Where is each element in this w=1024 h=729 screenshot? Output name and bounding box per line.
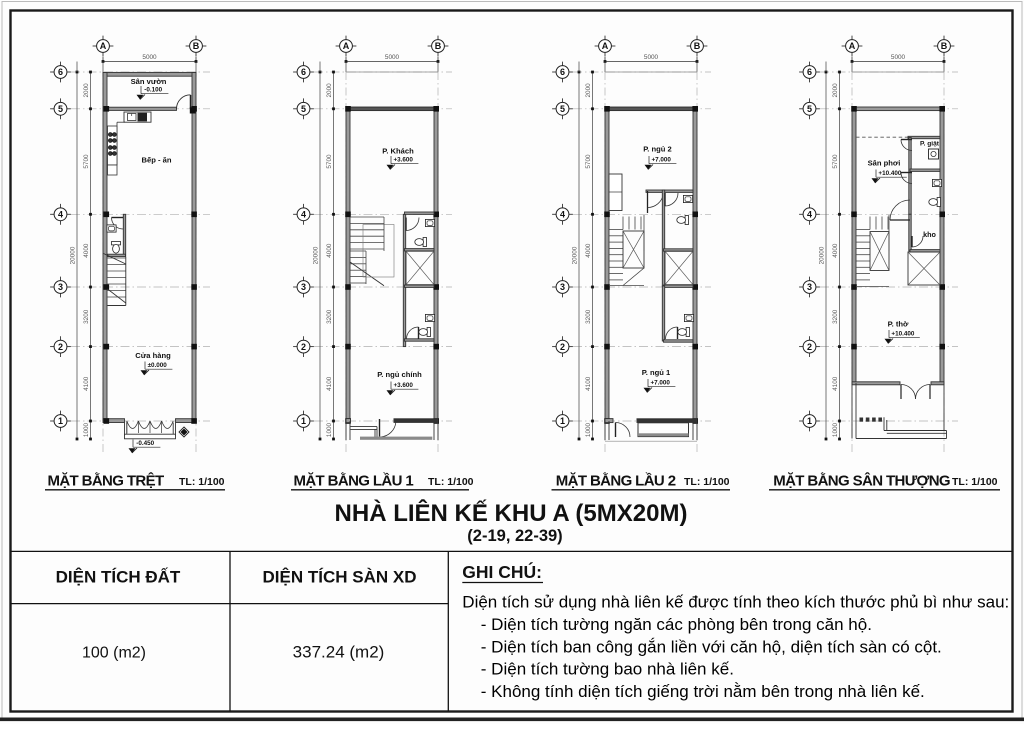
svg-text:2: 2 (807, 342, 812, 352)
svg-text:P. Khách: P. Khách (382, 147, 414, 156)
svg-text:4100: 4100 (585, 376, 592, 391)
svg-text:3: 3 (58, 282, 63, 292)
svg-text:B: B (694, 41, 701, 51)
svg-text:6: 6 (807, 67, 812, 77)
svg-text:A: A (602, 41, 609, 51)
svg-text:1000: 1000 (83, 422, 90, 437)
svg-text:P. ngủ 2: P. ngủ 2 (643, 145, 672, 154)
svg-text:5700: 5700 (326, 154, 333, 169)
svg-text:1: 1 (807, 416, 812, 426)
svg-text:2000: 2000 (83, 83, 90, 98)
svg-text:20000: 20000 (819, 246, 826, 264)
svg-text:Diện tích sử dụng nhà liên kế: Diện tích sử dụng nhà liên kế được tính … (462, 593, 1009, 612)
svg-text:4: 4 (807, 210, 812, 220)
svg-text:MẶT BẰNG LẦU 2: MẶT BẰNG LẦU 2 (556, 472, 676, 490)
svg-text:4000: 4000 (832, 243, 839, 258)
svg-text:4100: 4100 (832, 376, 839, 391)
svg-text:3: 3 (301, 282, 306, 292)
svg-text:P. ngủ 1: P. ngủ 1 (642, 368, 671, 377)
svg-text:Sân vườn: Sân vườn (131, 77, 167, 86)
svg-text:6: 6 (58, 67, 63, 77)
svg-text:Bếp - ăn: Bếp - ăn (142, 156, 172, 165)
svg-text:+10.400: +10.400 (878, 170, 901, 177)
svg-text:+7.000: +7.000 (650, 380, 670, 387)
svg-text:4000: 4000 (585, 243, 592, 258)
svg-text:3: 3 (807, 282, 812, 292)
svg-text:1000: 1000 (832, 422, 839, 437)
svg-text:+3.600: +3.600 (393, 157, 413, 164)
svg-text:3200: 3200 (326, 309, 333, 324)
svg-text:337.24 (m2): 337.24 (m2) (293, 643, 385, 662)
svg-text:2000: 2000 (326, 83, 333, 98)
svg-text:5700: 5700 (832, 154, 839, 169)
svg-text:MẶT BẰNG LẦU 1: MẶT BẰNG LẦU 1 (293, 472, 413, 490)
svg-text:TL: 1/100: TL: 1/100 (179, 476, 225, 488)
svg-text:A: A (343, 41, 350, 51)
svg-text:+3.600: +3.600 (393, 382, 413, 389)
svg-text:5: 5 (560, 104, 565, 114)
svg-text:5: 5 (301, 104, 306, 114)
svg-text:- Không tính diện tích giếng t: - Không tính diện tích giếng trời nằm bê… (481, 682, 925, 701)
svg-text:4: 4 (301, 210, 306, 220)
svg-text:4000: 4000 (326, 243, 333, 258)
svg-text:6: 6 (560, 67, 565, 77)
svg-text:2: 2 (301, 342, 306, 352)
svg-text:5700: 5700 (585, 154, 592, 169)
svg-text:- Diện tích tường ngăn các phò: - Diện tích tường ngăn các phòng bên tro… (481, 615, 872, 634)
svg-text:+7.000: +7.000 (651, 157, 671, 164)
svg-text:A: A (849, 41, 856, 51)
svg-text:- Diện tích tường bao nhà liên: - Diện tích tường bao nhà liên kế. (481, 660, 734, 679)
svg-text:4100: 4100 (83, 376, 90, 391)
svg-text:5000: 5000 (891, 54, 906, 61)
svg-text:B: B (193, 41, 200, 51)
svg-text:20000: 20000 (70, 246, 77, 264)
svg-text:20000: 20000 (313, 246, 320, 264)
svg-text:5: 5 (58, 104, 63, 114)
svg-text:B: B (435, 41, 442, 51)
svg-text:2: 2 (58, 342, 63, 352)
svg-text:3200: 3200 (832, 309, 839, 324)
svg-text:(2-19, 22-39): (2-19, 22-39) (467, 527, 562, 545)
svg-text:Sân phơi: Sân phơi (868, 159, 901, 168)
svg-text:1: 1 (58, 416, 63, 426)
svg-text:DIỆN TÍCH ĐẤT: DIỆN TÍCH ĐẤT (56, 568, 181, 587)
svg-text:3200: 3200 (83, 309, 90, 324)
svg-text:2000: 2000 (832, 83, 839, 98)
svg-text:NHÀ LIÊN KẾ KHU A (5MX20M): NHÀ LIÊN KẾ KHU A (5MX20M) (335, 499, 688, 527)
svg-text:5000: 5000 (644, 54, 659, 61)
svg-text:MẶT BẰNG SÂN THƯỢNG: MẶT BẰNG SÂN THƯỢNG (773, 472, 950, 490)
svg-text:B: B (941, 41, 948, 51)
svg-text:-0.100: -0.100 (144, 87, 162, 94)
svg-text:100 (m2): 100 (m2) (82, 645, 146, 662)
svg-text:3: 3 (560, 282, 565, 292)
svg-text:P. ngủ chính: P. ngủ chính (377, 370, 422, 379)
svg-text:1: 1 (301, 416, 306, 426)
svg-text:TL: 1/100: TL: 1/100 (952, 476, 998, 488)
svg-text:4000: 4000 (83, 243, 90, 258)
svg-text:kho: kho (923, 230, 936, 239)
svg-text:3200: 3200 (585, 309, 592, 324)
svg-text:5700: 5700 (83, 154, 90, 169)
svg-text:- Diện tích ban công gắn liền: - Diện tích ban công gắn liền với căn hộ… (481, 637, 942, 656)
svg-text:±0.000: ±0.000 (148, 362, 168, 369)
svg-text:2: 2 (560, 342, 565, 352)
svg-text:2000: 2000 (585, 83, 592, 98)
svg-text:1: 1 (560, 416, 565, 426)
svg-text:TL: 1/100: TL: 1/100 (684, 476, 730, 488)
svg-text:-0.450: -0.450 (136, 440, 154, 447)
svg-text:A: A (100, 41, 107, 51)
svg-text:+10.400: +10.400 (891, 331, 914, 338)
svg-text:GHI CHÚ:: GHI CHÚ: (462, 561, 542, 582)
svg-text:1000: 1000 (585, 422, 592, 437)
svg-text:P. thờ: P. thờ (888, 320, 909, 329)
svg-text:TL: 1/100: TL: 1/100 (428, 476, 474, 488)
svg-text:Cửa hàng: Cửa hàng (135, 351, 171, 360)
svg-text:DIỆN TÍCH SÀN XD: DIỆN TÍCH SÀN XD (263, 568, 417, 587)
svg-text:MẶT BẰNG TRỆT: MẶT BẰNG TRỆT (47, 472, 164, 490)
svg-text:4: 4 (560, 210, 565, 220)
svg-text:5000: 5000 (385, 54, 400, 61)
svg-text:1000: 1000 (326, 422, 333, 437)
svg-text:5: 5 (807, 104, 812, 114)
svg-text:6: 6 (301, 67, 306, 77)
svg-text:20000: 20000 (572, 246, 579, 264)
svg-text:4100: 4100 (326, 376, 333, 391)
svg-text:P. giặt: P. giặt (920, 141, 940, 148)
svg-text:5000: 5000 (142, 54, 157, 61)
svg-text:4: 4 (58, 210, 63, 220)
